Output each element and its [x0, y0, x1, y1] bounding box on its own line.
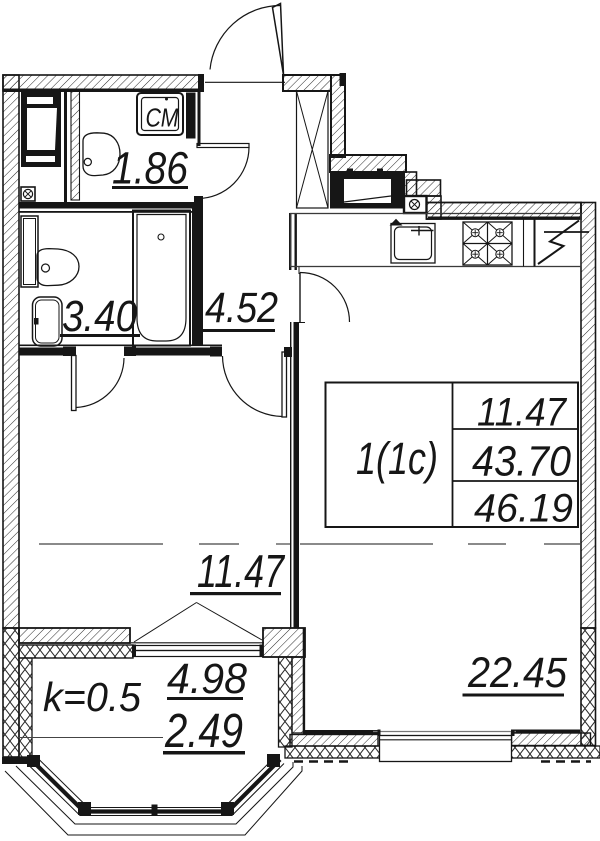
svg-text:4.52: 4.52	[205, 285, 278, 332]
svg-text:22.45: 22.45	[467, 650, 567, 697]
svg-text:11.47: 11.47	[477, 391, 568, 435]
svg-text:СМ: СМ	[146, 105, 180, 133]
svg-text:k=0.5: k=0.5	[43, 674, 141, 720]
svg-text:46.19: 46.19	[474, 487, 573, 531]
svg-text:4.98: 4.98	[167, 656, 247, 703]
svg-text:3.40: 3.40	[62, 292, 137, 341]
svg-text:1.86: 1.86	[112, 143, 189, 194]
svg-text:2.49: 2.49	[164, 705, 243, 758]
svg-text:11.47: 11.47	[197, 545, 286, 597]
svg-text:43.70: 43.70	[472, 439, 571, 486]
svg-text:1(1c): 1(1c)	[356, 433, 438, 484]
